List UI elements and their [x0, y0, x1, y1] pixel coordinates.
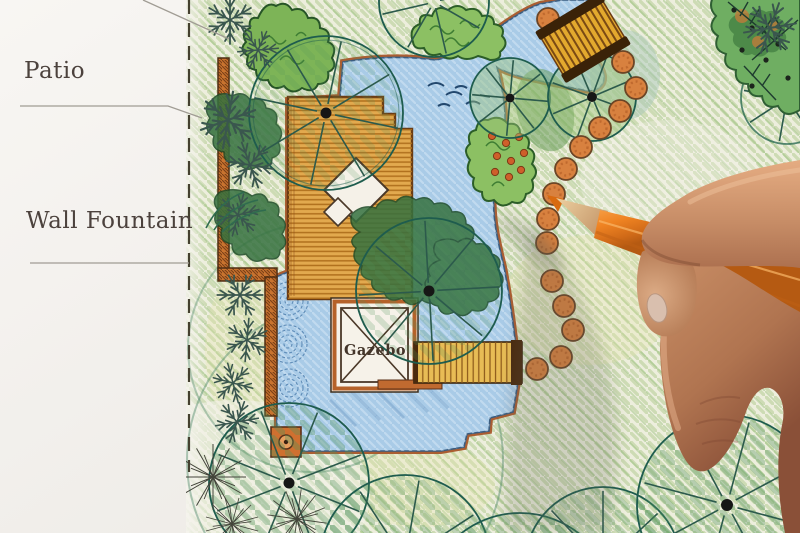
wall-fountain-label: Wall Fountain: [26, 208, 193, 234]
patio-label: Patio: [24, 58, 85, 84]
garden-plan-illustration: [0, 0, 800, 533]
gazebo-label: Gazebo: [344, 342, 406, 359]
wall-fountain-wall: [265, 277, 277, 416]
photo-of-garden-plan: Patio Wall Fountain Gazebo: [0, 0, 800, 533]
